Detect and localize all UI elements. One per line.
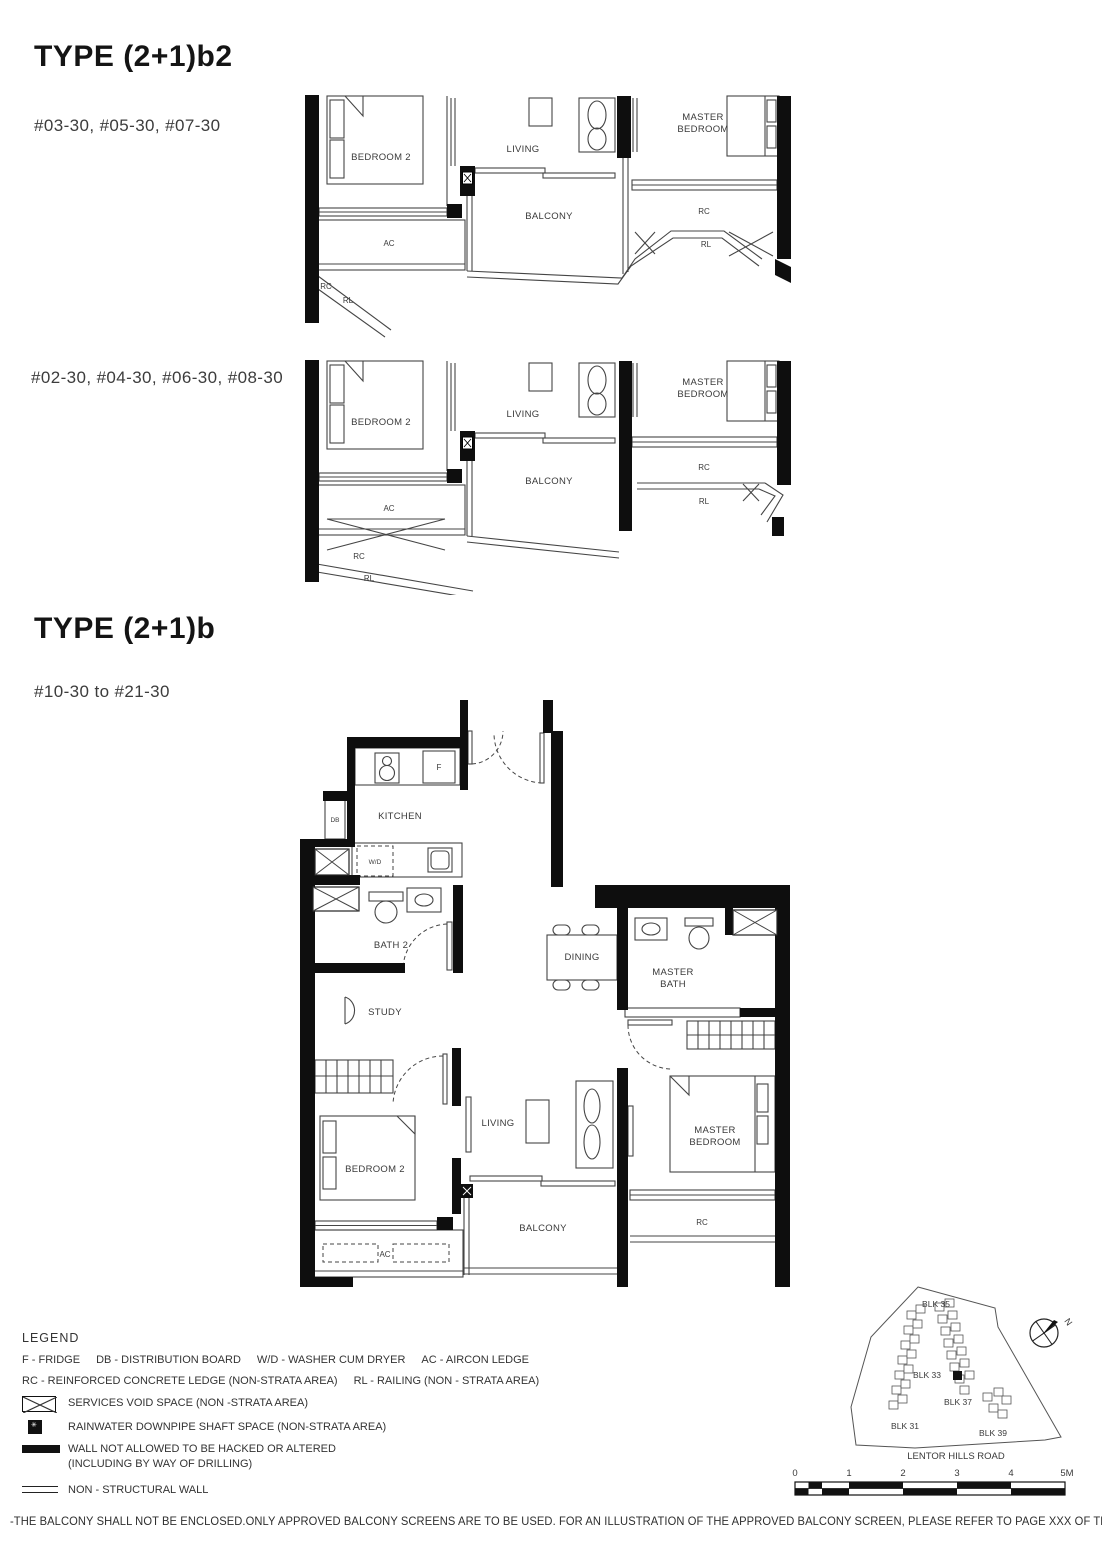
type-b-units: #10-30 to #21-30 xyxy=(34,682,170,702)
legend-rainwater: RAINWATER DOWNPIPE SHAFT SPACE (NON-STRA… xyxy=(22,1420,582,1434)
legend-rainwater-label: RAINWATER DOWNPIPE SHAFT SPACE (NON-STRA… xyxy=(68,1420,386,1434)
bedroom2-label: BEDROOM 2 xyxy=(351,417,411,428)
site-plan: BLK 35 BLK 33 BLK 31 BLK 37 BLK 39 LENTO… xyxy=(843,1283,1083,1468)
blk35-label: BLK 35 xyxy=(922,1299,950,1309)
rainwater-downpipe-icon xyxy=(28,1420,42,1434)
services-void-icon xyxy=(22,1396,56,1412)
legend-abbrev-line-1: F - FRIDGE DB - DISTRIBUTION BOARD W/D -… xyxy=(22,1354,582,1366)
db-tag: DB xyxy=(330,817,339,824)
rc-tag-right: RC xyxy=(698,463,710,472)
bath2-label: BATH 2 xyxy=(374,940,408,951)
master-bath-label-2: BATH xyxy=(660,979,686,990)
legend-abbrev-line-2: RC - REINFORCED CONCRETE LEDGE (NON-STRA… xyxy=(22,1375,582,1387)
balcony-label: BALCONY xyxy=(519,1223,567,1234)
master-bedroom-label-2: BEDROOM xyxy=(689,1137,740,1148)
legend-services-void-label: SERVICES VOID SPACE (NON -STRATA AREA) xyxy=(68,1396,308,1410)
type-b2-units-upper: #03-30, #05-30, #07-30 xyxy=(34,116,221,136)
balcony-label: BALCONY xyxy=(525,211,573,222)
legend: LEGEND F - FRIDGE DB - DISTRIBUTION BOAR… xyxy=(22,1331,582,1505)
scale-segments xyxy=(795,1482,1065,1495)
study-label: STUDY xyxy=(368,1007,402,1018)
ac-tag: AC xyxy=(379,1250,390,1259)
blk33-label: BLK 33 xyxy=(913,1370,941,1380)
rainwater-downpipe-icon xyxy=(461,1184,473,1198)
legend-nonstructural: NON - STRUCTURAL WALL xyxy=(22,1483,582,1497)
kitchen-label: KITCHEN xyxy=(378,811,422,822)
legend-services-void: SERVICES VOID SPACE (NON -STRATA AREA) xyxy=(22,1396,582,1412)
fridge-tag: F xyxy=(437,763,442,772)
blk37-label: BLK 37 xyxy=(944,1397,972,1407)
blk39-label: BLK 39 xyxy=(979,1428,1007,1438)
scale-tick: 1 xyxy=(846,1468,851,1479)
balcony-disclaimer: -THE BALCONY SHALL NOT BE ENCLOSED.ONLY … xyxy=(10,1514,1102,1528)
master-bedroom-label-1: MASTER xyxy=(682,377,723,388)
ac-tag: AC xyxy=(383,504,394,513)
north-label: N xyxy=(1062,1316,1074,1327)
bedroom2-label: BEDROOM 2 xyxy=(345,1164,405,1175)
rc-tag: RC xyxy=(696,1218,708,1227)
blk31-label: BLK 31 xyxy=(891,1421,919,1431)
ac-tag: AC xyxy=(383,239,394,248)
legend-item: F - FRIDGE xyxy=(22,1354,80,1366)
master-bedroom-label-2: BEDROOM xyxy=(677,389,728,400)
master-bedroom-label-1: MASTER xyxy=(682,112,723,123)
legend-wall-label-2: (INCLUDING BY WAY OF DRILLING) xyxy=(68,1457,336,1471)
dining-label: DINING xyxy=(564,952,599,963)
type-b2-units-lower: #02-30, #04-30, #06-30, #08-30 xyxy=(31,368,283,388)
scale-tick-labels: 0 1 2 3 4 5M xyxy=(792,1468,1073,1479)
legend-nonstructural-label: NON - STRUCTURAL WALL xyxy=(68,1483,208,1497)
rc-tag-left: RC xyxy=(320,282,332,291)
scale-tick: 0 xyxy=(792,1468,797,1479)
master-bath-label-1: MASTER xyxy=(652,967,693,978)
rc-tag-left: RC xyxy=(353,552,365,561)
road-label: LENTOR HILLS ROAD xyxy=(907,1451,1005,1462)
legend-wall-label-1: WALL NOT ALLOWED TO BE HACKED OR ALTERED xyxy=(68,1442,336,1456)
non-structural-wall-icon xyxy=(22,1486,58,1493)
rl-tag-left: RL xyxy=(364,574,375,583)
type-b2-title: TYPE (2+1)b2 xyxy=(34,40,233,74)
rl-tag-left: RL xyxy=(343,296,354,305)
scale-tick: 3 xyxy=(954,1468,959,1479)
legend-wall: WALL NOT ALLOWED TO BE HACKED OR ALTERED… xyxy=(22,1442,582,1471)
master-bedroom-label-2: BEDROOM xyxy=(677,124,728,135)
type-b-title: TYPE (2+1)b xyxy=(34,612,215,646)
structural-walls xyxy=(300,700,790,1287)
solid-wall-icon xyxy=(22,1445,60,1453)
living-label: LIVING xyxy=(507,409,540,420)
highlighted-unit xyxy=(953,1371,962,1380)
wd-tag: W/D xyxy=(369,859,382,866)
scale-tick: 4 xyxy=(1008,1468,1013,1479)
bedroom2-label: BEDROOM 2 xyxy=(351,152,411,163)
rainwater-downpipe-icon xyxy=(463,437,473,449)
rl-tag-right: RL xyxy=(701,240,712,249)
scale-bar: 0 1 2 3 4 5M xyxy=(788,1464,1078,1504)
legend-item: RL - RAILING (NON - STRATA AREA) xyxy=(354,1375,540,1387)
north-compass-icon: N xyxy=(1030,1316,1074,1347)
living-label: LIVING xyxy=(507,144,540,155)
legend-heading: LEGEND xyxy=(22,1331,582,1345)
balcony-label: BALCONY xyxy=(525,476,573,487)
scale-tick: 2 xyxy=(900,1468,905,1479)
floorplan-type-b-main: KITCHEN F DB W/D BATH 2 STUDY DINING MAS… xyxy=(295,698,795,1316)
master-bedroom-label-1: MASTER xyxy=(694,1125,735,1136)
legend-item: W/D - WASHER CUM DRYER xyxy=(257,1354,406,1366)
floorplan-type-b2-upper: BEDROOM 2 LIVING MASTER BEDROOM BALCONY … xyxy=(297,90,792,340)
legend-item: AC - AIRCON LEDGE xyxy=(421,1354,529,1366)
living-label: LIVING xyxy=(482,1118,515,1129)
rainwater-downpipe-icon xyxy=(463,172,473,184)
rc-tag-right: RC xyxy=(698,207,710,216)
legend-item: DB - DISTRIBUTION BOARD xyxy=(96,1354,241,1366)
floorplan-type-b2-lower: BEDROOM 2 LIVING MASTER BEDROOM BALCONY … xyxy=(297,355,792,595)
brochure-page: TYPE (2+1)b2 #03-30, #05-30, #07-30 xyxy=(0,0,1102,1568)
rl-tag-right: RL xyxy=(699,497,710,506)
scale-tick: 5M xyxy=(1060,1468,1073,1479)
legend-item: RC - REINFORCED CONCRETE LEDGE (NON-STRA… xyxy=(22,1375,338,1387)
